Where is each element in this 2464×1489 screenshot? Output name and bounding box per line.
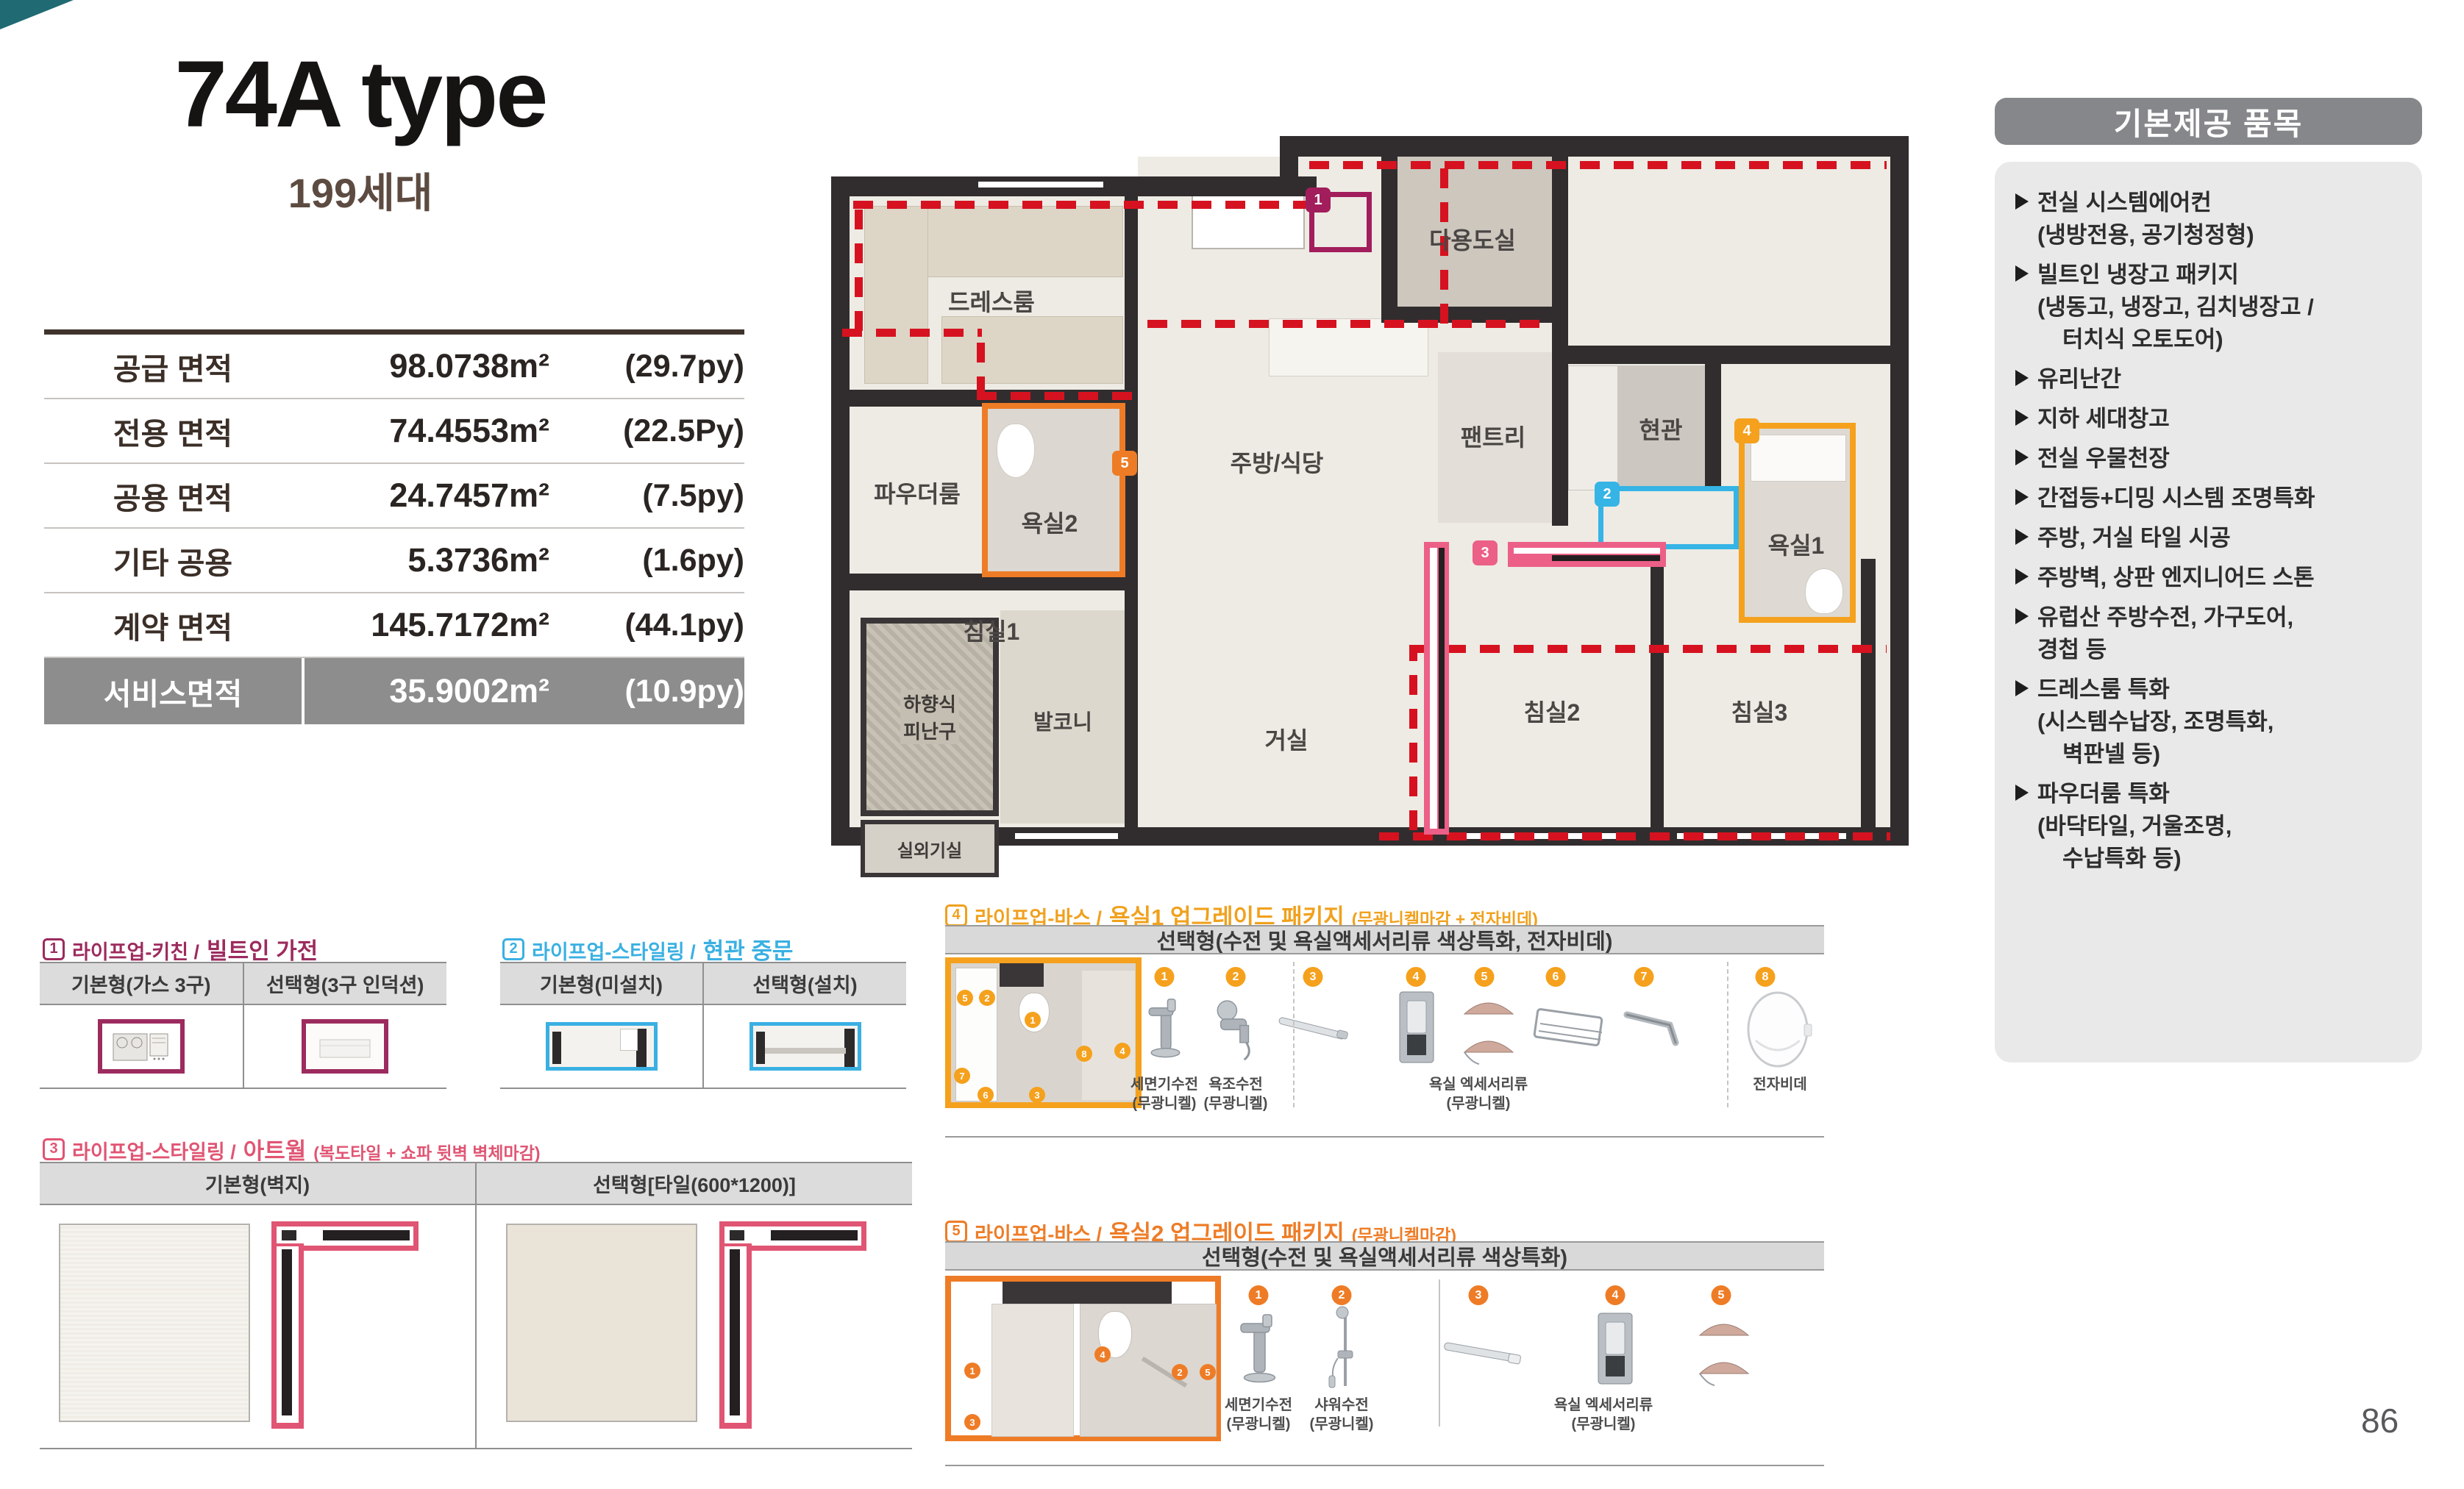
room-label-dressroom: 드레스룸 [948,284,1035,318]
recessed-paper-holder-image [1394,989,1439,1066]
option-image-cell [243,1005,447,1088]
mini-marker-1: 1 [964,1363,980,1379]
artwall-side-bar [719,1243,752,1429]
page-title: 74A type [44,40,677,149]
wall [1567,346,1890,364]
wall [1705,364,1721,489]
provided-items-panel: 전실 시스템에어컨 (냉방전용, 공기청정형) 빌트인 냉장고 패키지 (냉동고… [1995,162,2422,1063]
divider [1439,1279,1440,1426]
wall-segment [552,1032,561,1064]
triangle-bullet-icon [2015,680,2029,696]
floor-plan: 하향식 피난구 실외기실 1 2 3 [831,136,1909,879]
item-text: 파우더룸 특화 [2037,778,2232,810]
mini-marker-4: 4 [1094,1346,1111,1363]
mini-marker-2: 2 [979,990,995,1006]
artwall-plan-diagram [719,1221,866,1429]
area-py: (29.7py) [549,349,744,385]
marker-badge-1: 1 [1306,188,1331,213]
area-py: (44.1py) [549,607,744,643]
mini-marker-7: 7 [954,1068,970,1084]
bidet-image [1740,989,1820,1074]
item-label: 욕실 엑세서리류 (무광니켈) [1429,1075,1528,1113]
item-subtext: (시스템수납장, 조명특화, [2037,706,2273,738]
entry-door-none-image [546,1022,658,1071]
area-table: 공급 면적 98.0738m² (29.7py) 전용 면적 74.4553m²… [44,329,744,724]
item-number-3: 3 [1303,967,1323,987]
artwall-dark-bar [730,1249,740,1415]
divider [945,1136,1824,1138]
list-item: 드레스룸 특화 (시스템수납장, 조명특화, 벽판넬 등) [2014,674,2403,771]
wall [1861,559,1876,827]
artwall-stripe [1514,548,1660,554]
wall [1280,136,1909,157]
wall-segment [636,1029,647,1067]
artwall-select-cell [475,1205,912,1448]
item-text: 전실 시스템에어컨 [2037,187,2254,219]
tile-swatch [506,1224,697,1422]
item-number-5: 5 [1475,967,1495,987]
mini-marker-5: 5 [1200,1364,1216,1380]
table-row: 공용 면적 24.7457m² (7.5py) [44,464,744,529]
grab-bar-image [1618,1000,1688,1059]
room-label-bed2: 침실2 [1524,694,1581,728]
column-header: 기본형(벽지) [40,1163,475,1204]
window [1015,833,1118,839]
escape-hatch-room: 하향식 피난구 [861,618,999,816]
mini-marker-8: 8 [1076,1046,1092,1062]
option-zone-bath1 [1739,423,1856,623]
item-label-finish: (무광니켈) [1225,1415,1292,1434]
washbasin-faucet-image [1142,993,1186,1063]
service-area-dash [1147,320,1541,328]
wall-segment [844,1029,855,1067]
area-label: 서비스면적 [44,669,302,713]
item-text: 간접등+디밍 시스템 조명특화 [2037,482,2315,515]
room-label-living: 거실 [1265,722,1308,756]
wall-segment [1003,1282,1172,1304]
item-subtext: 경첩 등 [2037,634,2293,666]
tub-faucet-image [1212,993,1259,1063]
item-number-8: 8 [1756,967,1776,987]
area-label: 공급 면적 [44,344,302,388]
dressroom-closet [864,206,928,384]
corner-shelves-image [1695,1310,1753,1391]
option-zone-artwall-horizontal [1508,542,1666,567]
washbasin-faucet-image [1234,1310,1283,1388]
section3-category: 라이프업-스타일링 / [72,1136,236,1165]
mini-marker-4: 4 [1114,1043,1130,1059]
table-row: 전용 면적 74.4553m² (22.5Py) [44,399,744,464]
wall [1125,196,1138,827]
item-label: 전자비데 [1753,1075,1807,1094]
room-label: 실외기실 [897,836,962,862]
item-subtext: 수납특화 등) [2037,843,2232,875]
area-py: (10.9py) [549,674,744,710]
item-number-7: 7 [1634,967,1654,987]
service-area-dash [1409,645,1417,830]
item-label-name: 세면기수전 [1130,1075,1198,1094]
area-label: 공용 면적 [44,474,302,518]
dressroom-closet [941,316,1123,384]
artwall-dark-bar [323,1230,410,1240]
service-area-dash [853,201,1306,209]
provided-items-header: 기본제공 품목 [1995,98,2422,145]
item-label-name: 욕실 엑세서리류 [1429,1075,1528,1094]
item-label-finish: (무광니켈) [1204,1094,1268,1113]
triangle-bullet-icon [2015,449,2029,465]
section2-table: 기본형(미설치) 선택형(설치) [500,962,906,1089]
powder-area [991,1304,1074,1437]
artwall-dark-bar [771,1230,858,1240]
artwall-dark-bar [282,1230,296,1240]
column-header: 선택형[타일(600*1200)] [475,1163,912,1204]
table-row: 공급 면적 98.0738m² (29.7py) [44,335,744,399]
marker-badge-5: 5 [1112,451,1137,476]
section1-category: 라이프업-키친 / [72,936,199,965]
toilet [997,424,1035,478]
triangle-bullet-icon [2015,489,2029,505]
section1-title: 1 라이프업-키친 / 빌트인 가전 [43,932,318,965]
item-text: 전실 우물천장 [2037,443,2170,475]
grab-bar-image [1438,1324,1526,1382]
item-subtext: (냉방전용, 공기청정형) [2037,219,2254,251]
mini-marker-2: 2 [1172,1364,1188,1380]
section4-subheader-text: 선택형(수전 및 욕실액세서리류 색상특화, 전자비데) [1157,924,1613,955]
artwall-dark-bar [282,1249,292,1415]
section3-table: 기본형(벽지) 선택형[타일(600*1200)] [40,1162,912,1449]
item-number-4: 4 [1406,967,1426,987]
marker-badge-3: 3 [1473,540,1498,565]
service-area-dash [855,206,863,331]
wallpaper-swatch [59,1224,250,1422]
divider [1293,962,1295,1107]
item-label-finish: (무광니켈) [1429,1094,1528,1113]
room-label-bath2: 욕실2 [1022,505,1078,539]
option-zone-bath2 [982,403,1125,577]
service-area-dash [977,329,985,396]
section5-subheader-text: 선택형(수전 및 욕실액세서리류 색상특화) [1202,1240,1567,1271]
item-label: 욕실 엑세서리류 (무광니켈) [1554,1396,1653,1434]
section3-name: 아트월 [243,1132,307,1165]
area-m2: 24.7457m² [302,476,549,515]
triangle-bullet-icon [2015,193,2029,210]
mini-marker-3: 3 [964,1414,980,1430]
option-image-cell [500,1005,702,1088]
room-label-bed3: 침실3 [1731,694,1788,728]
wall [1280,136,1298,196]
column-header: 선택형(설치) [702,963,906,1004]
item-label: 욕조수전 (무광니켈) [1204,1075,1268,1113]
room-label: 하향식 [900,690,959,717]
list-item: 간접등+디밍 시스템 조명특화 [2014,482,2403,515]
corner-shelves-image [1460,989,1517,1070]
section2-name: 현관 중문 [703,932,794,965]
entry-door-installed-image [749,1022,861,1071]
wall [1651,559,1664,827]
mini-marker-6: 6 [978,1087,994,1103]
section3-note: (복도타일 + 쇼파 뒷벽 벽체마감) [313,1139,540,1164]
recessed-paper-holder-image [1592,1310,1638,1388]
section1-table: 기본형(가스 3구) 선택형(3구 인덕션) [40,962,446,1089]
room-label-utility: 다용도실 [1429,222,1516,256]
wall [1890,136,1909,846]
section4-number-badge: 4 [945,904,967,926]
triangle-bullet-icon [2015,410,2029,426]
service-area-dash [1379,832,1890,840]
item-text: 지하 세대창고 [2037,403,2170,435]
item-number-3: 3 [1469,1285,1489,1305]
table-row: 계약 면적 145.7172m² (44.1py) [44,593,744,658]
list-item: 주방, 거실 타일 시공 [2014,522,2403,554]
wall-segment [756,1032,765,1064]
divider [1727,962,1728,1107]
area-py: (1.6py) [549,543,744,579]
service-area-dash [1309,161,1887,169]
wall-segment [1000,963,1044,987]
wall [831,176,850,846]
bathtub [1751,435,1846,482]
section3-title: 3 라이프업-스타일링 / 아트월 (복도타일 + 쇼파 뒷벽 벽체마감) [43,1132,541,1165]
item-label-name: 세면기수전 [1225,1396,1292,1415]
list-item: 전실 우물천장 [2014,443,2403,475]
artwall-stripe [1430,548,1437,829]
service-area-dash [977,392,1133,400]
table-row: 기타 공용 5.3736m² (1.6py) [44,529,744,593]
window [978,182,1103,188]
section2-number-badge: 2 [502,938,524,960]
page-number: 86 [2361,1401,2399,1440]
item-label: 세면기수전 (무광니켈) [1225,1396,1292,1434]
item-number-4: 4 [1606,1285,1626,1305]
item-text: 주방, 거실 타일 시공 [2037,522,2231,554]
mini-marker-5: 5 [957,990,973,1006]
room-label: 피난구 [900,717,959,744]
item-text: 유럽산 주방수전, 가구도어, [2037,601,2293,634]
column-header: 선택형(3구 인덕션) [243,963,447,1004]
divider [945,1465,1824,1466]
item-subtext: 벽판넬 등) [2037,738,2273,771]
section2-title: 2 라이프업-스타일링 / 현관 중문 [502,932,793,965]
list-item: 유리난간 [2014,363,2403,396]
artwall-side-bar [271,1243,304,1429]
list-item: 주방벽, 상판 엔지니어드 스톤 [2014,562,2403,594]
room-label-powderroom: 파우더룸 [874,476,961,510]
item-label: 세면기수전 (무광니켈) [1130,1075,1198,1113]
area-py: (7.5py) [549,478,744,514]
shower-faucet-image [1320,1305,1366,1397]
item-label-name: 샤워수전 [1310,1396,1374,1415]
households-subtitle: 199세대 [44,160,677,220]
section5-number-badge: 5 [945,1221,967,1243]
triangle-bullet-icon [2015,265,2029,282]
item-subtext: (냉동고, 냉장고, 김치냉장고 / [2037,291,2314,324]
bath1-room-area [1082,971,1135,1100]
service-area-dash [842,329,982,337]
item-number-2: 2 [1332,1285,1352,1305]
kitchen-sink [1192,188,1305,249]
column-header: 기본형(미설치) [500,963,702,1004]
induction-icon [316,1029,374,1063]
option-image-cell [702,1005,906,1088]
list-item: 전실 시스템에어컨 (냉방전용, 공기청정형) [2014,187,2403,251]
induction-image [302,1019,388,1074]
room-label-bath1: 욕실1 [1768,527,1825,561]
toilet [1805,568,1843,614]
option-zone-artwall-vertical [1424,542,1449,835]
area-m2: 145.7172m² [302,606,549,644]
item-label-name: 전자비데 [1753,1075,1807,1094]
item-text: 빌트인 냉장고 패키지 [2037,259,2314,291]
table-row-service-area: 서비스면적 35.9002m² (10.9py) [44,658,744,724]
triangle-bullet-icon [2015,370,2029,386]
towel-rack-image [1530,1000,1607,1059]
area-m2: 74.4553m² [302,412,549,450]
artwall-plan-diagram [271,1221,419,1429]
artwall-stripe [1552,555,1660,561]
provided-items-title: 기본제공 품목 [2114,99,2304,144]
option-image-cell [40,1005,243,1088]
item-number-1: 1 [1155,967,1175,987]
section5-subheader: 선택형(수전 및 욕실액세서리류 색상특화) [945,1241,1824,1271]
column-header: 기본형(가스 3구) [40,963,243,1004]
area-m2: 35.9002m² [302,658,549,724]
section2-category: 라이프업-스타일링 / [532,936,696,965]
gas-cooktop-image [98,1019,185,1074]
list-item: 유럽산 주방수전, 가구도어, 경첩 등 [2014,601,2403,666]
list-item: 빌트인 냉장고 패키지 (냉동고, 냉장고, 김치냉장고 / 터치식 오토도어) [2014,259,2403,356]
brochure-page: 74A type 199세대 공급 면적 98.0738m² (29.7py) … [0,0,2464,1489]
marker-badge-2: 2 [1595,482,1620,507]
area-m2: 5.3736m² [302,541,549,579]
marker-badge-4: 4 [1734,418,1759,443]
room-label-entry: 현관 [1639,412,1683,446]
area-m2: 98.0738m² [302,347,549,385]
item-label-name: 욕조수전 [1204,1075,1268,1094]
item-text: 주방벽, 상판 엔지니어드 스톤 [2037,562,2315,594]
closet-segment [620,1029,638,1051]
item-number-1: 1 [1249,1285,1269,1305]
item-number-6: 6 [1546,967,1566,987]
mini-marker-3: 3 [1029,1087,1045,1103]
gas-cooktop-icon [112,1029,171,1063]
item-label-finish: (무광니켈) [1554,1415,1653,1434]
section1-number-badge: 1 [43,938,65,960]
item-label-finish: (무광니켈) [1310,1415,1374,1434]
section4-subheader: 선택형(수전 및 욕실액세서리류 색상특화, 전자비데) [945,925,1824,954]
area-py: (22.5Py) [549,413,744,449]
list-item: 지하 세대창고 [2014,403,2403,435]
artwall-stripe [1439,548,1445,829]
room-label-balcony: 발코니 [1033,705,1092,736]
section1-name: 빌트인 가전 [207,932,318,965]
wall [1552,157,1568,526]
area-label: 기타 공용 [44,538,302,582]
triangle-bullet-icon [2015,785,2029,801]
bath2-plan-image: 1 3 4 2 5 [945,1276,1221,1441]
triangle-bullet-icon [2015,568,2029,585]
artwall-dark-bar [730,1230,744,1240]
area-label: 계약 면적 [44,603,302,647]
list-item: 파우더룸 특화 (바닥타일, 거울조명, 수납특화 등) [2014,778,2403,875]
item-text: 유리난간 [2037,363,2121,396]
section3-number-badge: 3 [43,1138,65,1160]
outdoor-unit-room: 실외기실 [861,820,999,877]
item-subtext: (바닥타일, 거울조명, [2037,810,2232,843]
bath1-plan-image: 5 2 1 8 4 7 6 3 [945,957,1142,1108]
room-label-bed1: 침실1 [964,613,1020,647]
inner-door-line [765,1048,846,1054]
item-label: 샤워수전 (무광니켈) [1310,1396,1374,1434]
triangle-bullet-icon [2015,608,2029,624]
item-number-5: 5 [1712,1285,1731,1305]
item-text: 드레스룸 특화 [2037,674,2273,706]
corner-accent-triangle [0,0,74,29]
service-area-dash [1412,645,1887,653]
mini-marker-1: 1 [1025,1012,1041,1028]
item-label-finish: (무광니켈) [1130,1094,1198,1113]
towel-bar-image [1272,1000,1353,1059]
room-label-kitchen: 주방/식당 [1231,445,1324,479]
item-subtext: 터치식 오토도어) [2037,324,2314,356]
item-label-name: 욕실 엑세서리류 [1554,1396,1653,1415]
triangle-bullet-icon [2015,529,2029,545]
room-label-pantry: 팬트리 [1461,419,1525,453]
artwall-basic-cell [40,1205,475,1448]
area-label: 전용 면적 [44,409,302,453]
entry-closet [1568,365,1618,490]
item-number-2: 2 [1226,967,1246,987]
